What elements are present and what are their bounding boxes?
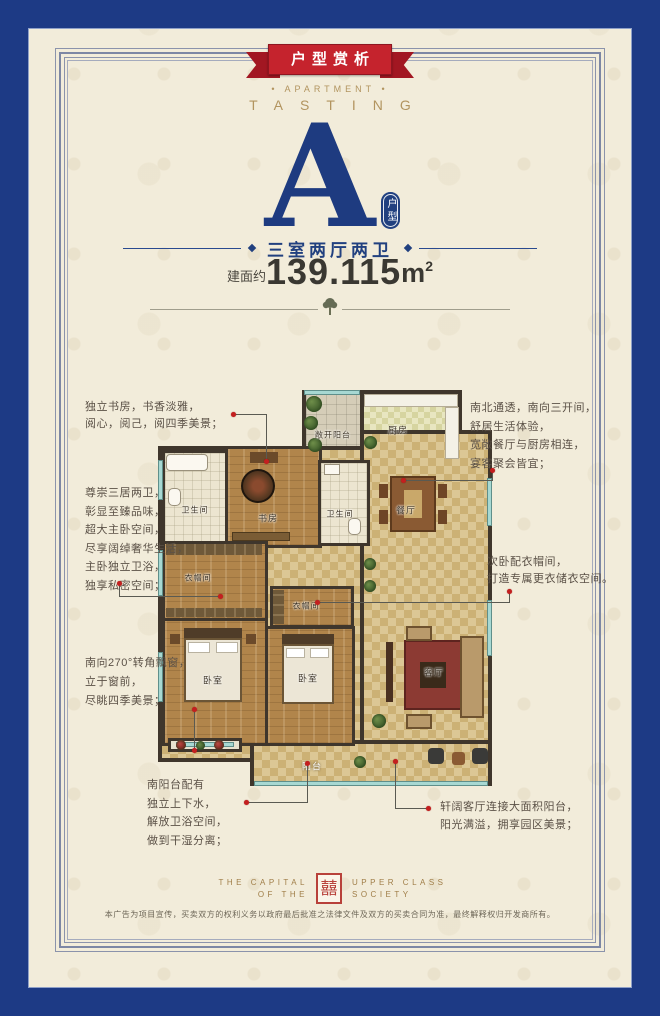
callout-dot (218, 594, 223, 599)
annotation-south-balcony: 南阳台配有 独立上下水， 解放卫浴空间， 做到干湿分离； (147, 776, 228, 850)
plant-icon (364, 580, 376, 592)
armchair (406, 626, 432, 641)
chair (438, 510, 447, 524)
sink (324, 464, 340, 475)
callout-line (194, 710, 195, 750)
room-label: 客厅 (424, 666, 444, 679)
callout-dot (401, 478, 406, 483)
tree-divider-line-left (150, 309, 318, 310)
flower-icon (196, 741, 205, 750)
tree-divider-line-right (342, 309, 510, 310)
room-label: 卧室 (298, 672, 318, 685)
divider-line (419, 248, 537, 249)
annotation-closet: 次卧配衣帽间， 打造专属更衣储衣空间。 (487, 554, 614, 588)
chair (379, 510, 388, 524)
pillow (188, 642, 210, 653)
callout-dot (507, 589, 512, 594)
armchair (406, 714, 432, 729)
flower-icon (214, 740, 224, 750)
window (487, 478, 492, 526)
callout-dot (393, 759, 398, 764)
balcony-chair (472, 748, 488, 764)
kitchen-counter (364, 394, 458, 407)
unit-type-badge: 户型 (381, 192, 400, 229)
ribbon-title: 户型赏析 (268, 44, 392, 75)
chair (379, 484, 388, 498)
pillow (286, 648, 305, 658)
room-label: 敞开阳台 (315, 430, 351, 441)
area-exponent: 2 (425, 259, 433, 290)
bookshelf (232, 532, 290, 541)
callout-line (403, 480, 493, 481)
annotation-dining-kitchen: 南北通透，南向三开间， 舒居生活体验， 宽敞餐厅与厨房相连， 宴客聚会皆宜； (470, 399, 597, 474)
poster-page: 户型赏析 • APARTMENT • TASTING A 户型 三室两厅两卫 建… (0, 0, 660, 1016)
room-label: 卫生间 (327, 509, 354, 520)
window (304, 390, 360, 395)
unit-letter: A (240, 118, 400, 238)
nightstand (170, 634, 180, 644)
toilet (348, 518, 361, 535)
wardrobe (166, 608, 262, 617)
callout-line (246, 802, 307, 803)
callout-dot (490, 468, 495, 473)
callout-dot (117, 581, 122, 586)
bed-headboard (282, 634, 334, 644)
area-number: 139.115 (266, 254, 401, 290)
plant-icon (304, 416, 318, 430)
sofa (460, 636, 484, 718)
area-row: 建面约 139.115 m 2 (130, 252, 530, 290)
room-label: 厨房 (388, 424, 408, 437)
floor-plan: 敞开阳台 厨房 卫生间 书房 卫生间 餐厅 衣帽间 衣帽间 卧室 卧室 客厅 阳… (158, 390, 492, 790)
callout-line (317, 602, 510, 603)
pillow (216, 642, 238, 653)
wardrobe (273, 590, 284, 624)
room-label: 餐厅 (396, 504, 416, 517)
disclaimer-text: 本广告为项目宣传，买卖双方的权利义务以政府最后批准之法律文件及双方的买卖合同为准… (60, 909, 600, 920)
annotation-study: 独立书房，书香淡雅， 阅心，阅己，阅四季美景； (85, 399, 223, 432)
callout-line (119, 596, 220, 597)
window (487, 600, 492, 656)
brand-text-right: UPPER CLASS SOCIETY (352, 877, 492, 901)
plant-icon (364, 558, 376, 570)
callout-dot (305, 761, 310, 766)
room-label: 卧室 (203, 674, 223, 687)
chair (438, 484, 447, 498)
callout-dot (315, 600, 320, 605)
callout-dot (192, 707, 197, 712)
callout-dot (264, 459, 269, 464)
diamond-ornament-icon (248, 244, 256, 252)
flower-icon (176, 740, 186, 750)
plant-icon (364, 436, 377, 449)
plant-icon (372, 714, 386, 728)
tree-icon (321, 296, 339, 316)
tv-cabinet (386, 642, 393, 702)
annotation-bay-window: 南向270°转角飘窗， 立于窗前， 尽眺四季美景； (85, 654, 190, 711)
annotation-bathrooms: 尊崇三居两卫， 彰显至臻品味， 超大主卧空间， 尽享阔绰奢华生活， 主卧独立卫浴… (85, 484, 189, 596)
callout-dot (192, 748, 197, 753)
plant-icon (354, 756, 366, 768)
window (254, 781, 488, 786)
apartment-caption: • APARTMENT • (0, 84, 660, 94)
brand-seal-icon: 囍 (316, 873, 342, 904)
room-label: 书房 (258, 512, 278, 525)
callout-line (395, 763, 396, 808)
annotation-living-balcony: 轩阔客厅连接大面积阳台， 阳光满溢，拥享园区美景； (440, 798, 578, 834)
pillow (310, 648, 329, 658)
callout-dot (426, 806, 431, 811)
diamond-ornament-icon (404, 244, 412, 252)
brand-text-left: THE CAPITAL OF THE (178, 877, 308, 901)
area-label: 建面约 (227, 266, 266, 290)
balcony-chair (428, 748, 444, 764)
bed-headboard (184, 628, 242, 638)
callout-dot (231, 412, 236, 417)
callout-line (233, 414, 266, 415)
balcony-table (452, 752, 465, 765)
callout-line (395, 808, 429, 809)
round-rug (241, 469, 275, 503)
kitchen-counter (445, 407, 459, 459)
plant-icon (306, 396, 322, 412)
room-label: 衣帽间 (185, 573, 212, 584)
area-unit: m (401, 256, 425, 290)
bathtub (166, 454, 208, 471)
nightstand (246, 634, 256, 644)
divider-line (123, 248, 241, 249)
callout-line (266, 414, 267, 461)
callout-dot (244, 800, 249, 805)
callout-line (307, 764, 308, 803)
